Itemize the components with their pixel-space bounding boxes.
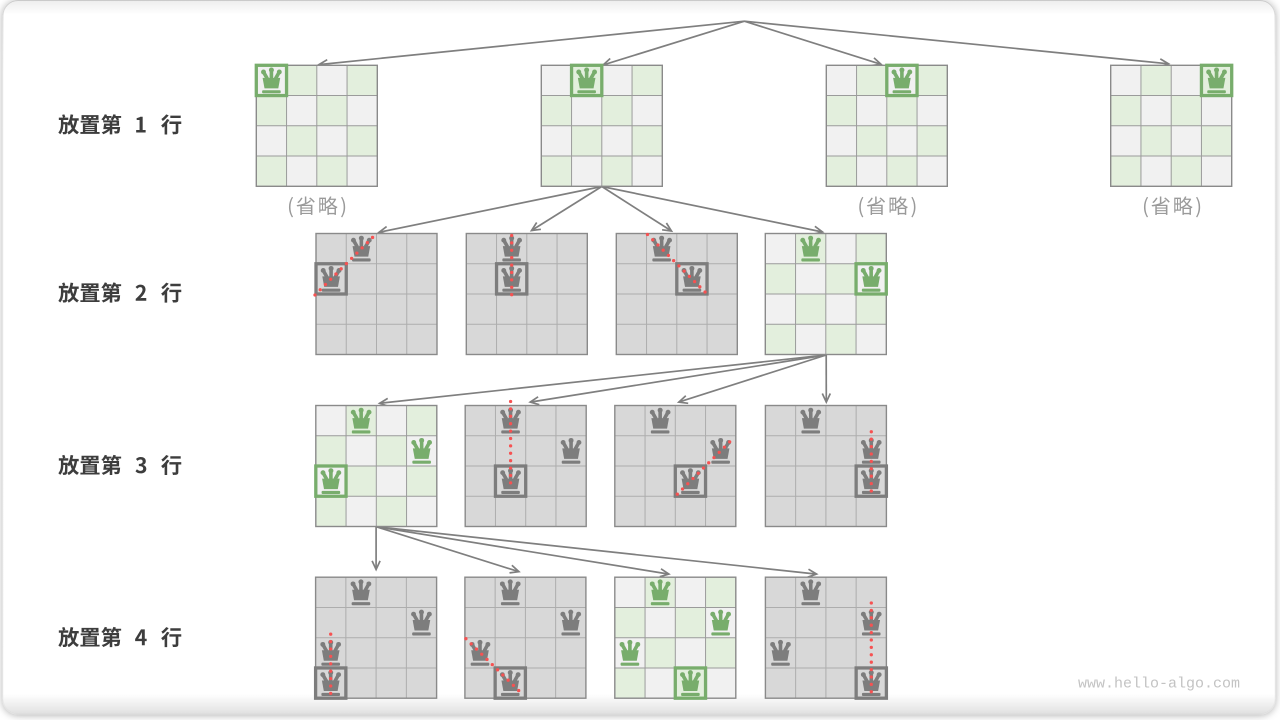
svg-text:www.hello-algo.com: www.hello-algo.com [1078, 676, 1240, 693]
